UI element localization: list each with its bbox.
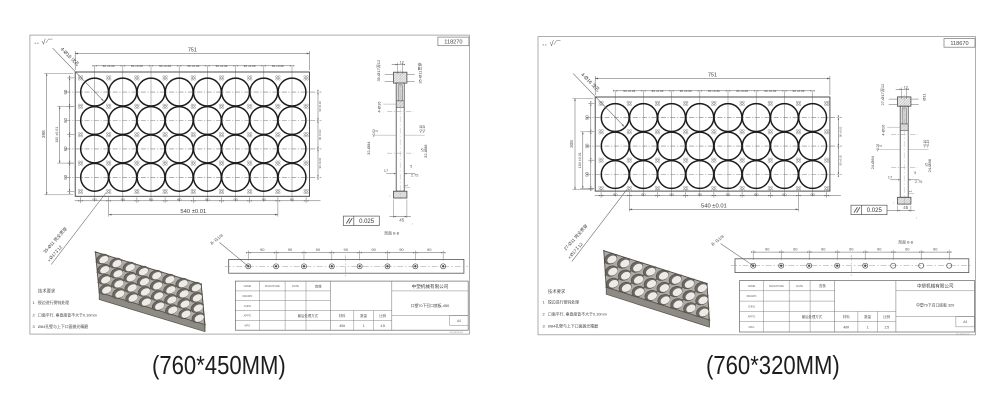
svg-text:0.025: 0.025 (359, 219, 375, 225)
svg-text:90 ±0.02: 90 ±0.02 (623, 89, 635, 93)
svg-text:5: 5 (914, 171, 916, 175)
svg-text:90: 90 (584, 171, 589, 176)
svg-text:90: 90 (149, 197, 154, 202)
svg-text:3 Ø84孔壁与上下口面抛光精磨: 3 Ø84孔壁与上下口面抛光精磨 (33, 324, 89, 329)
svg-text:≥5: ≥5 (925, 163, 929, 167)
svg-text:+0.15: +0.15 (422, 125, 426, 133)
svg-text:+0.02: +0.02 (876, 143, 880, 151)
svg-text:CHKD: CHKD (244, 304, 251, 308)
svg-text:查核: 查核 (315, 284, 322, 289)
svg-text:最后处理方式: 最后处理方式 (298, 313, 319, 318)
svg-text:A4: A4 (457, 319, 461, 323)
svg-text:12: 12 (903, 84, 908, 89)
svg-text:308: 308 (569, 140, 574, 148)
svg-text:2.75: 2.75 (915, 180, 922, 184)
svg-text:90: 90 (262, 197, 267, 202)
svg-text:XX-XXXX-XX: XX-XXXX-XX (450, 332, 464, 334)
svg-text:40#: 40# (843, 325, 849, 329)
svg-text:17: 17 (888, 174, 893, 179)
svg-text:90 ±0.02: 90 ±0.02 (736, 89, 748, 93)
svg-text:90: 90 (399, 247, 404, 252)
svg-text:90: 90 (63, 174, 68, 179)
svg-text:118270: 118270 (444, 40, 462, 46)
svg-text:17: 17 (384, 168, 389, 173)
svg-text:90: 90 (121, 197, 126, 202)
svg-text:NAME: NAME (748, 284, 756, 288)
svg-text:XX-XXXX-XX: XX-XXXX-XX (956, 334, 970, 336)
svg-text:90: 90 (584, 115, 589, 120)
svg-text:材料: 材料 (339, 313, 346, 318)
svg-text:90: 90 (316, 247, 321, 252)
svg-text:1:5: 1:5 (884, 325, 889, 329)
svg-text:90 ±0.02: 90 ±0.02 (272, 64, 284, 68)
svg-text:90: 90 (793, 247, 798, 252)
svg-text:751: 751 (188, 48, 197, 54)
svg-text:90: 90 (669, 192, 674, 197)
svg-text:90: 90 (726, 192, 731, 197)
svg-text:90: 90 (933, 247, 938, 252)
svg-text:90 ±0.02: 90 ±0.02 (708, 89, 720, 93)
svg-text:MFG: MFG (749, 325, 755, 329)
svg-text:90: 90 (290, 197, 295, 202)
svg-text:90 ±0.02: 90 ±0.02 (839, 155, 843, 166)
svg-text:90 ±0.02: 90 ±0.02 (215, 64, 227, 68)
svg-text:1: 1 (404, 184, 408, 186)
svg-text:90: 90 (782, 192, 787, 197)
svg-text:4-Ø16: 4-Ø16 (880, 124, 885, 136)
svg-text:90: 90 (63, 89, 68, 94)
svg-text:2 口面平行, 垂直度皆不大于0.10mm: 2 口面平行, 垂直度皆不大于0.10mm (33, 312, 97, 317)
svg-text:90: 90 (613, 192, 618, 197)
svg-text:口塑70下召口底板-450: 口塑70下召口底板-450 (411, 303, 449, 308)
svg-text:35-Ø17深12: 35-Ø17深12 (375, 59, 381, 82)
svg-text:90: 90 (177, 197, 182, 202)
svg-text:90: 90 (260, 247, 265, 252)
svg-text:√: √ (549, 39, 554, 48)
svg-text:NAME: NAME (244, 284, 252, 288)
svg-text:90 ±0.02: 90 ±0.02 (159, 64, 171, 68)
svg-text:+0.15: +0.15 (926, 139, 930, 147)
svg-text:45: 45 (399, 217, 404, 222)
svg-text:SIGNATURE: SIGNATURE (265, 284, 280, 288)
svg-text:180 ±0.01: 180 ±0.01 (55, 127, 59, 143)
svg-text:剖面 B-B: 剖面 B-B (384, 230, 399, 235)
svg-text:↕: ↕ (389, 194, 391, 198)
svg-text:90: 90 (63, 146, 68, 151)
svg-text:Ø11: Ø11 (921, 93, 926, 101)
svg-text:90: 90 (641, 192, 646, 197)
svg-text:40#: 40# (339, 324, 345, 328)
svg-text:90: 90 (584, 143, 589, 148)
svg-text:540 ±0.01: 540 ±0.01 (180, 209, 206, 215)
svg-text:90 ±0.02: 90 ±0.02 (244, 64, 256, 68)
svg-text:8- G1/4: 8- G1/4 (209, 233, 224, 246)
svg-text:90: 90 (63, 118, 68, 123)
svg-text:90 ±0.02: 90 ±0.02 (764, 89, 776, 93)
svg-text:90: 90 (233, 197, 238, 202)
svg-text:4-Ø16 沈孔: 4-Ø16 沈孔 (59, 46, 81, 68)
svg-text:数量: 数量 (360, 313, 367, 318)
svg-text:0.025: 0.025 (867, 208, 883, 214)
svg-text:DRAWN: DRAWN (243, 294, 253, 298)
svg-text:90: 90 (427, 247, 432, 252)
svg-text:90 ±0.02: 90 ±0.02 (318, 157, 322, 168)
svg-text:APP'D: APP'D (748, 315, 756, 319)
svg-text:1 锐边进行倒钝处理: 1 锐边进行倒钝处理 (33, 300, 70, 305)
svg-text:APP'D: APP'D (244, 314, 252, 318)
svg-text:剖面 B-B: 剖面 B-B (898, 240, 913, 245)
svg-text:90 ±0.02: 90 ±0.02 (792, 89, 804, 93)
svg-text:+0.02: +0.02 (372, 129, 376, 137)
svg-text:3 Ø84孔壁与上下口面抛光精磨: 3 Ø84孔壁与上下口面抛光精磨 (543, 323, 599, 328)
svg-text:90: 90 (821, 247, 826, 252)
svg-text:最后处理方式: 最后处理方式 (802, 314, 823, 319)
svg-text:比例: 比例 (883, 314, 890, 319)
svg-text:1: 1 (867, 325, 869, 329)
svg-text:90: 90 (698, 192, 703, 197)
svg-text:2 口面平行, 垂直度皆不大于0.10mm: 2 口面平行, 垂直度皆不大于0.10mm (543, 312, 607, 317)
svg-text:4-Ø16 沈孔: 4-Ø16 沈孔 (579, 71, 601, 93)
svg-text:中塑机械有限公司: 中塑机械有限公司 (917, 282, 954, 289)
svg-text:2.75: 2.75 (411, 174, 418, 178)
svg-text:MFG: MFG (245, 323, 251, 327)
svg-text:90: 90 (849, 247, 854, 252)
svg-text:a.a: a.a (34, 41, 39, 45)
svg-text:90: 90 (288, 247, 293, 252)
svg-text:√: √ (41, 38, 46, 47)
svg-text:90: 90 (877, 247, 882, 252)
svg-text:0: 0 (375, 130, 379, 132)
svg-text:90 ±0.02: 90 ±0.02 (318, 129, 322, 140)
svg-text:1:5: 1:5 (380, 324, 385, 328)
svg-text:118670: 118670 (950, 41, 968, 47)
svg-text:90 ±0.02: 90 ±0.02 (131, 64, 143, 68)
svg-text:90: 90 (344, 247, 349, 252)
svg-text:398: 398 (41, 130, 46, 138)
svg-text:材料: 材料 (843, 314, 850, 319)
svg-text:DATE: DATE (796, 284, 803, 288)
svg-text:90 ±0.02: 90 ±0.02 (318, 101, 322, 112)
svg-text:a.a: a.a (542, 43, 547, 47)
svg-text:32-Ø84: 32-Ø84 (366, 141, 371, 155)
svg-text:DATE: DATE (292, 284, 299, 288)
svg-text:CHKD: CHKD (748, 304, 755, 308)
svg-text:查核: 查核 (819, 283, 826, 288)
svg-text:↕: ↕ (916, 215, 918, 219)
svg-text:90 ±0.02: 90 ±0.02 (651, 89, 663, 93)
svg-text:35-Ø11贯穿: 35-Ø11贯穿 (416, 63, 422, 84)
svg-text:技术要求: 技术要求 (38, 287, 56, 294)
svg-text:90 ±0.02: 90 ±0.02 (187, 64, 199, 68)
svg-text:1 锐边进行倒钝处理: 1 锐边进行倒钝处理 (543, 299, 580, 304)
svg-text:↕: ↕ (412, 222, 414, 226)
svg-text:比例: 比例 (379, 313, 386, 318)
svg-text:180 ±0.01: 180 ±0.01 (578, 152, 582, 168)
svg-text:751: 751 (708, 73, 717, 79)
svg-text:27-Ø17深12: 27-Ø17深12 (879, 83, 885, 106)
svg-text:中塑70下召口底板 320: 中塑70下召口底板 320 (916, 302, 954, 307)
svg-text:90: 90 (810, 192, 815, 197)
svg-text:↕: ↕ (893, 200, 895, 204)
svg-text:90: 90 (205, 197, 210, 202)
svg-text:1: 1 (908, 190, 912, 192)
svg-text:数量: 数量 (864, 314, 871, 319)
svg-text:12: 12 (399, 60, 404, 65)
svg-text:90: 90 (754, 192, 759, 197)
svg-text:90 ±0.02: 90 ±0.02 (680, 89, 692, 93)
svg-text:中塑机械有限公司: 中塑机械有限公司 (412, 283, 449, 290)
svg-text:90: 90 (765, 247, 770, 252)
svg-text:4-Ø16: 4-Ø16 (376, 101, 381, 113)
svg-text:SIGNATURE: SIGNATURE (769, 284, 784, 288)
svg-text:DRAWN: DRAWN (747, 294, 757, 298)
svg-text:8- G1/4: 8- G1/4 (710, 234, 725, 247)
svg-text:≥5: ≥5 (421, 148, 425, 152)
svg-text:技术要求: 技术要求 (548, 288, 566, 295)
svg-text:90: 90 (371, 247, 376, 252)
svg-text:540 ±0.01: 540 ±0.01 (701, 204, 727, 210)
svg-text:90 ±0.02: 90 ±0.02 (103, 64, 115, 68)
svg-text:24-Ø84: 24-Ø84 (870, 155, 875, 169)
svg-text:90: 90 (92, 197, 97, 202)
svg-text:90: 90 (905, 247, 910, 252)
svg-text:90 ±0.02: 90 ±0.02 (839, 126, 843, 137)
svg-text:45: 45 (903, 205, 908, 210)
svg-text:5: 5 (410, 165, 412, 169)
svg-text:A4: A4 (963, 320, 967, 324)
svg-text:1: 1 (363, 324, 365, 328)
svg-text:0: 0 (879, 145, 883, 147)
